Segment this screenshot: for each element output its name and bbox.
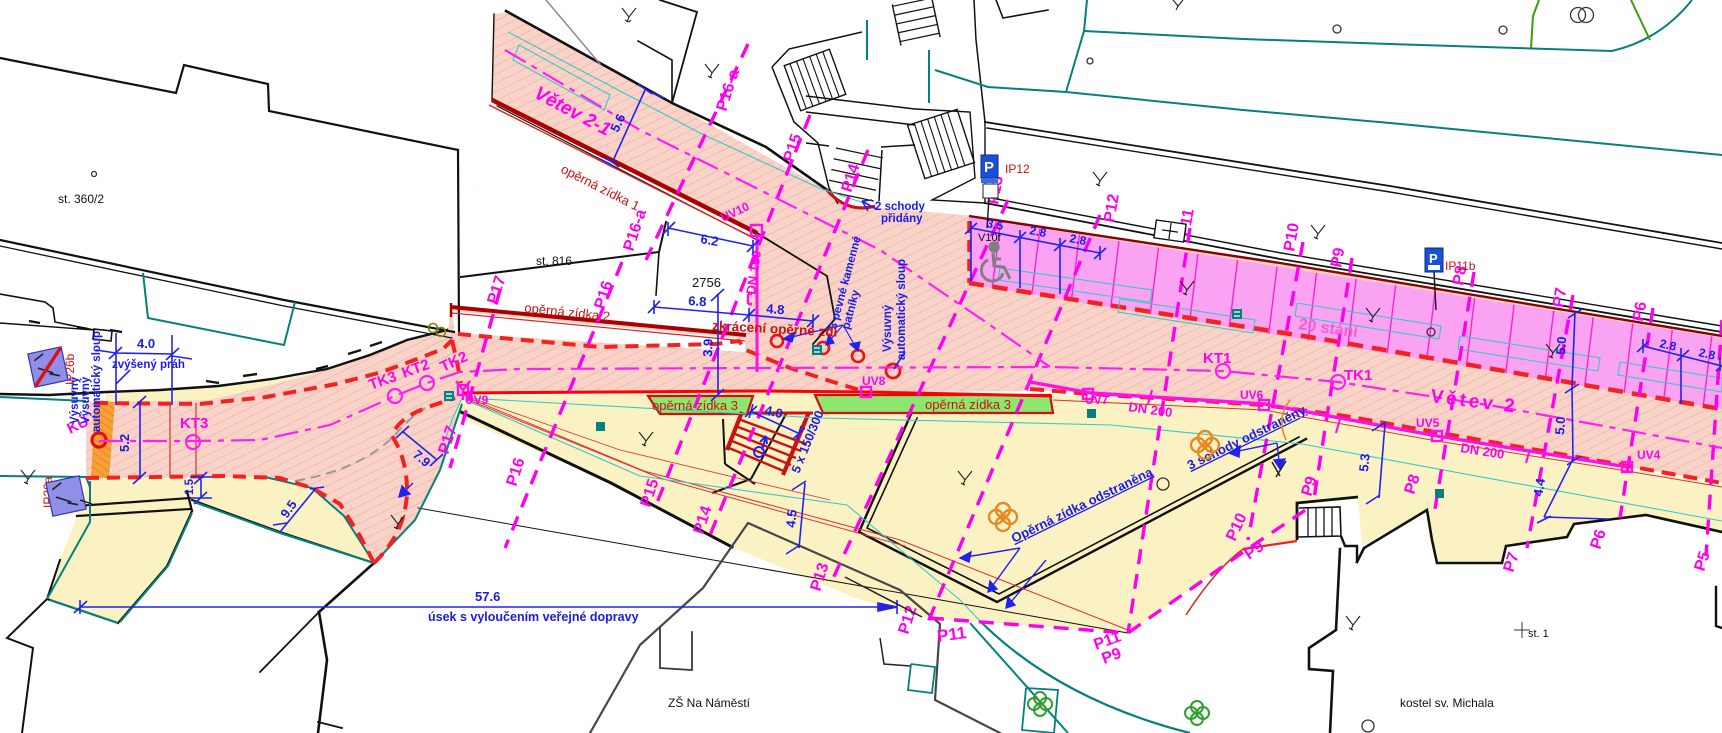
- svg-text:zvýšený práh: zvýšený práh: [112, 359, 185, 371]
- svg-text:IP11b: IP11b: [1445, 259, 1476, 273]
- svg-text:úsek s vyloučením veřejné dopr: úsek s vyloučením veřejné dopravy: [428, 610, 639, 624]
- svg-text:P: P: [1429, 251, 1438, 266]
- svg-text:TK1: TK1: [1344, 367, 1372, 384]
- svg-text:automatický sloup: automatický sloup: [896, 259, 908, 360]
- svg-text:4.0: 4.0: [137, 336, 155, 351]
- svg-text:UV7: UV7: [1085, 393, 1109, 407]
- svg-text:P7: P7: [1550, 286, 1570, 308]
- svg-text:6.8: 6.8: [688, 293, 707, 309]
- svg-text:P: P: [984, 159, 994, 176]
- svg-text:KT1: KT1: [1203, 350, 1231, 367]
- svg-text:5.0: 5.0: [1553, 336, 1569, 355]
- svg-text:UV9: UV9: [465, 393, 489, 407]
- svg-text:P9: P9: [1328, 246, 1348, 268]
- svg-text:P6: P6: [1630, 300, 1650, 322]
- svg-text:UV8: UV8: [862, 374, 886, 388]
- svg-text:IP12: IP12: [1005, 162, 1030, 176]
- svg-text:6.2: 6.2: [699, 231, 719, 249]
- svg-text:57.6: 57.6: [475, 589, 500, 604]
- svg-text:5.3: 5.3: [1356, 453, 1373, 472]
- svg-text:opěrná zídka 3: opěrná zídka 3: [652, 398, 738, 413]
- svg-text:1.5: 1.5: [184, 478, 196, 495]
- svg-text:st. 816: st. 816: [536, 254, 572, 268]
- svg-text:2 schody: 2 schody: [875, 201, 925, 213]
- svg-text:kostel sv. Michala: kostel sv. Michala: [1400, 696, 1494, 710]
- svg-text:4.5: 4.5: [783, 509, 800, 528]
- svg-text:4.8: 4.8: [766, 301, 785, 317]
- svg-text:2756: 2756: [692, 275, 721, 290]
- svg-text:přidány: přidány: [881, 213, 923, 225]
- svg-text:opěrná zídka 3: opěrná zídka 3: [925, 397, 1011, 412]
- svg-text:ZŠ Na Náměstí: ZŠ Na Náměstí: [668, 695, 751, 710]
- svg-text:st. 1: st. 1: [1528, 628, 1549, 640]
- svg-text:Výsuvný: Výsuvný: [882, 304, 894, 352]
- svg-text:st. 360/2: st. 360/2: [58, 192, 104, 206]
- svg-text:5.0: 5.0: [1552, 416, 1568, 435]
- svg-text:UV6: UV6: [1240, 388, 1264, 402]
- svg-text:5.2: 5.2: [117, 434, 132, 452]
- svg-text:3.9: 3.9: [700, 339, 716, 358]
- svg-text:V10f: V10f: [978, 232, 1002, 244]
- svg-text:P11: P11: [936, 623, 968, 646]
- svg-text:automatický sloup: automatický sloup: [91, 331, 103, 432]
- svg-text:UV4: UV4: [1637, 448, 1661, 462]
- svg-text:KT3: KT3: [180, 415, 208, 432]
- svg-text:UV5: UV5: [1416, 416, 1440, 430]
